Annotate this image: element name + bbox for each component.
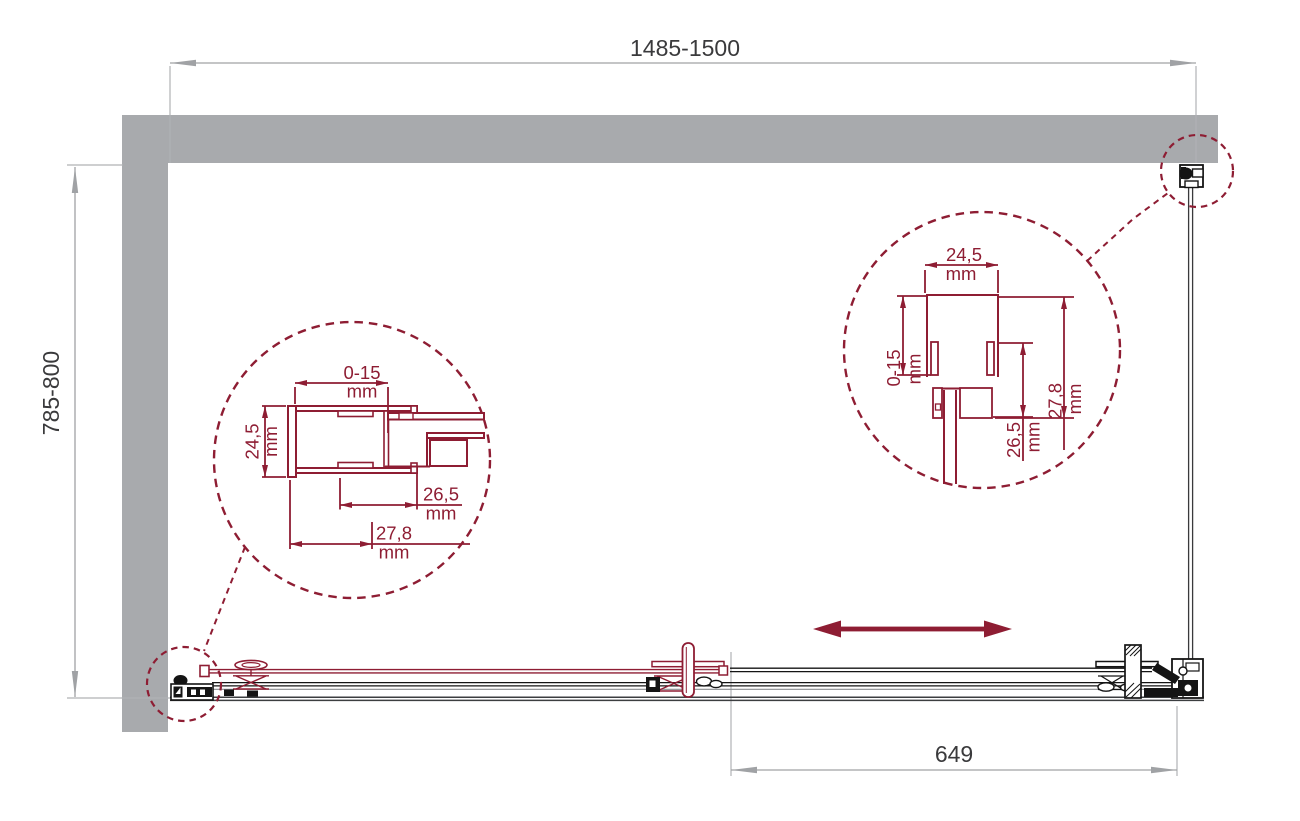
svg-text:mm: mm: [1064, 384, 1085, 415]
wall-profile-bracket-left: [171, 675, 213, 700]
svg-text:mm: mm: [946, 263, 977, 284]
dimension-door-panel-width: 649: [731, 652, 1177, 776]
detail-view-right: 24,5 mm 0-15 mm 26,5 mm: [844, 212, 1120, 488]
svg-text:0-15: 0-15: [883, 349, 904, 386]
slide-direction-arrow-icon: [813, 621, 1012, 638]
detail-right-dim-adjustment: 0-15 mm: [883, 296, 931, 387]
door-panel-width-label: 649: [935, 741, 973, 767]
wall-profile-section-right: [927, 295, 998, 484]
detail-left-dim-profile-height: 24,5 mm: [242, 406, 287, 477]
left-wall: [122, 115, 168, 732]
technical-drawing-shower-enclosure-plan: 1485-1500 785-800 649: [0, 0, 1300, 821]
roller-carriage-left: [224, 660, 269, 696]
door-handle-knob: [683, 643, 695, 697]
detail-right-dim-a: 26,5 mm: [993, 343, 1044, 461]
svg-text:mm: mm: [904, 354, 925, 385]
svg-text:24,5: 24,5: [946, 244, 982, 265]
detail-right-dim-profile-width: 24,5 mm: [925, 244, 998, 293]
leader-line-right: [1087, 193, 1168, 261]
svg-text:mm: mm: [1023, 422, 1044, 453]
top-wall: [122, 115, 1218, 163]
svg-text:mm: mm: [347, 381, 378, 402]
sliding-door-panel: [200, 666, 728, 677]
svg-text:26,5: 26,5: [423, 484, 459, 505]
svg-text:27,8: 27,8: [376, 523, 412, 544]
overall-width-label: 1485-1500: [630, 35, 740, 61]
fixed-front-panel: [730, 668, 1152, 671]
overall-depth-label: 785-800: [38, 351, 64, 435]
detail-view-left: 0-15 mm 24,5 mm 26,5 mm: [214, 322, 490, 598]
detail-left-dim-adjustment: 0-15 mm: [295, 362, 388, 433]
svg-text:27,8: 27,8: [1045, 383, 1066, 419]
svg-text:mm: mm: [260, 426, 281, 457]
svg-text:mm: mm: [379, 542, 410, 563]
wall-anchor-top-right: [1180, 165, 1204, 188]
wall-profile-section-left: [288, 406, 484, 477]
detail-left-dim-a: 26,5 mm: [340, 473, 462, 524]
svg-text:mm: mm: [426, 503, 457, 524]
svg-text:26,5: 26,5: [1003, 422, 1024, 458]
leader-line-left: [204, 547, 245, 651]
side-panel-glass: [1189, 187, 1193, 662]
